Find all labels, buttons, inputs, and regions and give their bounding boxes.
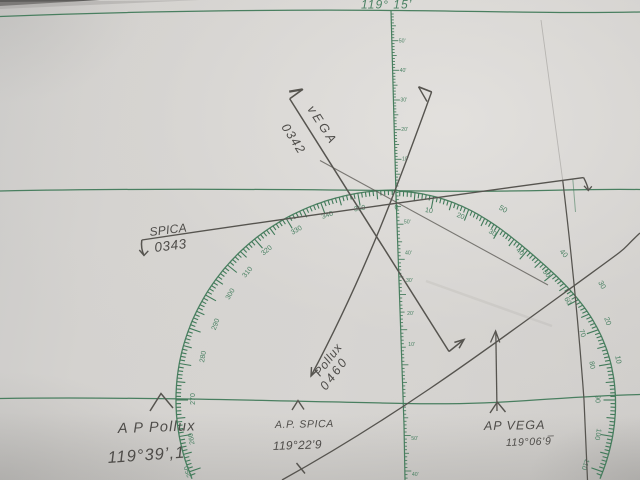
svg-text:40': 40' (405, 251, 412, 257)
svg-text:300: 300 (225, 287, 237, 301)
svg-text:110: 110 (580, 458, 590, 471)
svg-text:20: 20 (602, 316, 613, 327)
svg-text:40: 40 (558, 247, 570, 259)
svg-text:100: 100 (593, 428, 602, 441)
svg-text:280: 280 (199, 350, 208, 363)
svg-text:AP VEGA: AP VEGA (483, 418, 546, 433)
svg-text:30': 30' (400, 98, 407, 104)
svg-text:60: 60 (562, 296, 572, 306)
svg-text:40': 40' (400, 68, 407, 74)
svg-text:A P Pollux: A P Pollux (117, 418, 196, 437)
svg-text:30: 30 (487, 228, 497, 238)
svg-text:0343: 0343 (154, 236, 188, 255)
svg-text:330: 330 (290, 225, 304, 237)
svg-text:10: 10 (424, 207, 433, 215)
svg-text:50': 50' (399, 39, 406, 45)
svg-text:10: 10 (613, 355, 623, 365)
svg-text:50': 50' (411, 436, 418, 442)
svg-text:80: 80 (587, 361, 595, 370)
svg-text:310: 310 (241, 266, 254, 280)
svg-text:vEGA: vEGA (304, 103, 340, 148)
svg-text:50': 50' (404, 220, 411, 226)
svg-text:40: 40 (515, 247, 526, 257)
svg-text:50: 50 (497, 203, 509, 215)
svg-text:A.P. SPICA: A.P. SPICA (274, 418, 334, 431)
svg-text:119°22’9: 119°22’9 (273, 437, 323, 453)
svg-text:10': 10' (408, 342, 415, 348)
svg-text:30: 30 (596, 279, 608, 291)
svg-text:119°06’9̅: 119°06’9̅ (506, 435, 555, 449)
svg-text:320: 320 (260, 244, 274, 257)
svg-text:290: 290 (211, 318, 222, 331)
svg-text:40': 40' (412, 472, 419, 478)
svg-text:119°39’,1: 119°39’,1 (107, 444, 186, 467)
svg-text:30': 30' (406, 278, 413, 284)
svg-text:20': 20' (407, 311, 414, 317)
svg-text:20': 20' (401, 127, 408, 133)
svg-text:0342: 0342 (278, 121, 308, 157)
svg-text:119° 15’: 119° 15’ (361, 0, 412, 12)
svg-text:20: 20 (456, 212, 466, 221)
